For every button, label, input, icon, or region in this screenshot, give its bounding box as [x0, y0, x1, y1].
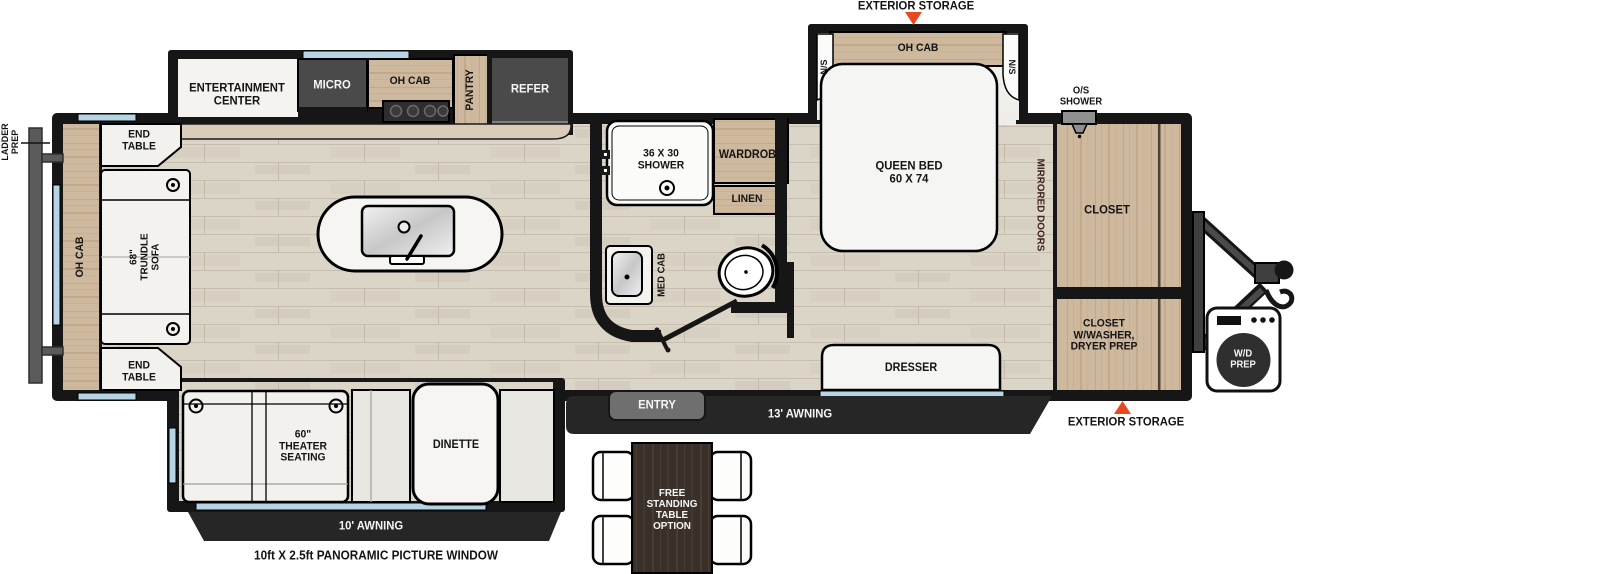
linen-label: LINEN — [731, 194, 762, 206]
micro-label: MICRO — [313, 79, 351, 92]
vanity-sink — [606, 246, 652, 304]
refer-label: REFER — [511, 83, 549, 96]
mirrored-doors-label: MIRRORED DOORS — [1034, 159, 1045, 252]
window-strip — [303, 51, 409, 59]
entry-label: ENTRY — [638, 399, 676, 412]
queen-bed-label: QUEEN BED 60 X 74 — [875, 159, 942, 184]
end-table-top-label: END TABLE — [122, 129, 156, 152]
wardrobe-label: WARDROBE — [719, 149, 783, 161]
door-side-slide — [167, 378, 565, 512]
window-strip — [53, 185, 60, 325]
nightstand-right-label: N/S — [1006, 60, 1016, 75]
wd-prep-label: W/D PREP — [1230, 349, 1256, 370]
entertainment-center-label: ENTERTAINMENT CENTER — [189, 81, 285, 106]
kitchen-island — [318, 197, 502, 271]
ladder-prep-label: LADDER PREP — [1, 123, 21, 160]
dresser-label: DRESSER — [885, 362, 937, 374]
end-table-bottom-label: END TABLE — [122, 360, 156, 383]
dinette-label: DINETTE — [433, 439, 479, 451]
exterior-storage-top-label: EXTERIOR STORAGE — [858, 0, 974, 12]
os-shower-label: O/S SHOWER — [1060, 86, 1102, 107]
oh-cab-rear-label: OH CAB — [75, 237, 87, 278]
awning-10-label: 10' AWNING — [339, 520, 403, 533]
oh-cab-bedroom-label: OH CAB — [898, 43, 939, 55]
panoramic-window-label: 10ft X 2.5ft PANORAMIC PICTURE WINDOW — [254, 549, 498, 562]
exterior-storage-arrow-top — [905, 12, 922, 25]
awning-13-label: 13' AWNING — [768, 408, 832, 421]
closet-divider-wall — [1053, 287, 1181, 299]
window-strip — [78, 114, 136, 121]
trundle-sofa-label: 68" TRUNDLE SOFA — [128, 233, 161, 280]
floorplan-canvas: EXTERIOR STORAGE LADDER PREP OH CAB END … — [0, 0, 1600, 574]
exterior-storage-arrow-front — [1114, 401, 1131, 414]
oh-cab-galley-label: OH CAB — [390, 76, 431, 88]
window-strip — [78, 393, 136, 400]
closet-washer-label: CLOSET W/WASHER, DRYER PREP — [1071, 319, 1138, 354]
theater-seating-label: 60" THEATER SEATING — [279, 430, 327, 465]
pantry-label: PANTRY — [465, 69, 477, 110]
nightstand-left-label: N/S — [820, 60, 830, 75]
exterior-storage-front-label: EXTERIOR STORAGE — [1068, 416, 1184, 429]
closet-label: CLOSET — [1084, 204, 1130, 217]
stove-icon — [383, 101, 449, 122]
med-cab-label: MED CAB — [658, 253, 669, 297]
free-standing-table-label: FREE STANDING TABLE OPTION — [647, 488, 698, 533]
shower-label: 36 X 30 SHOWER — [638, 148, 685, 171]
window-strip — [169, 428, 176, 483]
